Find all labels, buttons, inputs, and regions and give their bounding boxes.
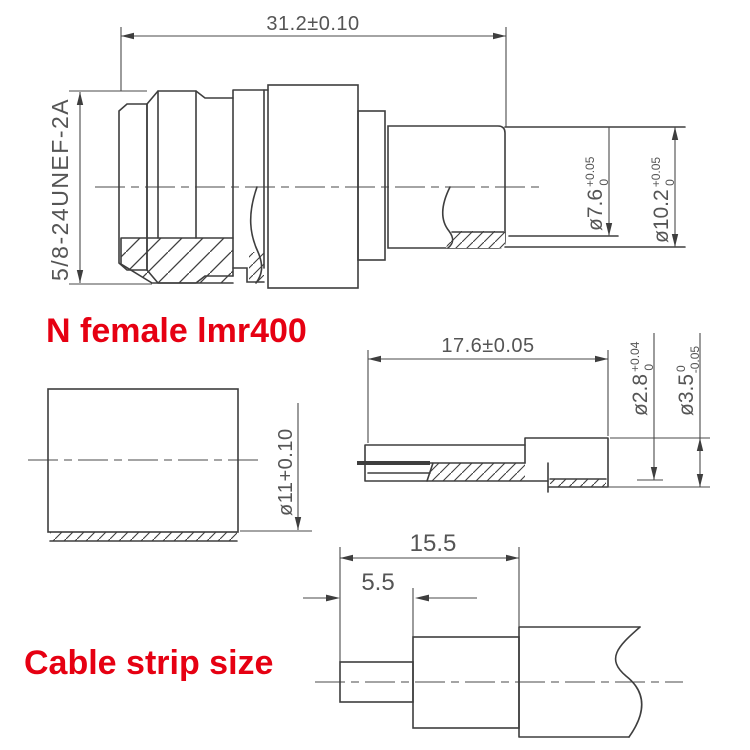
ferrule-view: ø11+0.10 <box>28 389 312 541</box>
strip-inner-label: 5.5 <box>361 569 394 596</box>
thread-spec-label: 5/8-24UNEF-2A <box>47 98 73 281</box>
strip-outer-label: 15.5 <box>410 530 457 557</box>
dim-ferrule-id: ø11+0.10 <box>240 403 312 531</box>
ferrule-id-label: ø11+0.10 <box>275 428 297 516</box>
dim-overall-length: 31.2±0.10 <box>121 13 506 127</box>
collar-od-label: ø3.50-0.05 <box>674 346 702 416</box>
pin-body <box>357 445 548 481</box>
dim-pin-od: ø2.8+0.040 <box>628 333 657 480</box>
heading-cable-strip: Cable strip size <box>24 644 273 683</box>
pin-collar <box>525 438 608 492</box>
center-pin-view: 17.6±0.05 ø2.8+0.040 <box>357 333 710 492</box>
nut-section-hatch <box>121 238 233 283</box>
dim-collar-od: ø3.50-0.05 <box>674 333 703 487</box>
technical-drawing-page: 31.2±0.10 5/8-24UNEF-2A ø7.6+0.050 ø10 <box>0 0 750 750</box>
pin-extension-lines <box>607 438 710 487</box>
dim-pin-length: 17.6±0.05 <box>368 335 608 443</box>
pin-od-label: ø2.8+0.040 <box>628 341 656 416</box>
cable-strip-view: 15.5 5.5 <box>303 530 683 737</box>
technical-drawing-svg: 31.2±0.10 5/8-24UNEF-2A ø7.6+0.050 ø10 <box>0 0 750 750</box>
dim-bore-diameter: ø7.6+0.050 <box>583 127 612 236</box>
dim-strip-inner: 5.5 <box>303 569 477 662</box>
dim-strip-outer: 15.5 <box>340 530 519 662</box>
connector-top-view: 31.2±0.10 5/8-24UNEF-2A ø7.6+0.050 ø10 <box>47 13 685 288</box>
pin-length-label: 17.6±0.05 <box>441 335 534 357</box>
back-ring <box>358 111 385 260</box>
overall-length-label: 31.2±0.10 <box>266 13 359 35</box>
bore-diameter-label: ø7.6+0.050 <box>583 156 611 231</box>
dim-body-od: ø10.2+0.050 <box>649 127 678 247</box>
ferrule-wall-section <box>50 532 237 541</box>
heading-connector-type: N female lmr400 <box>46 312 307 351</box>
body-od-label: ø10.2+0.050 <box>649 157 677 243</box>
